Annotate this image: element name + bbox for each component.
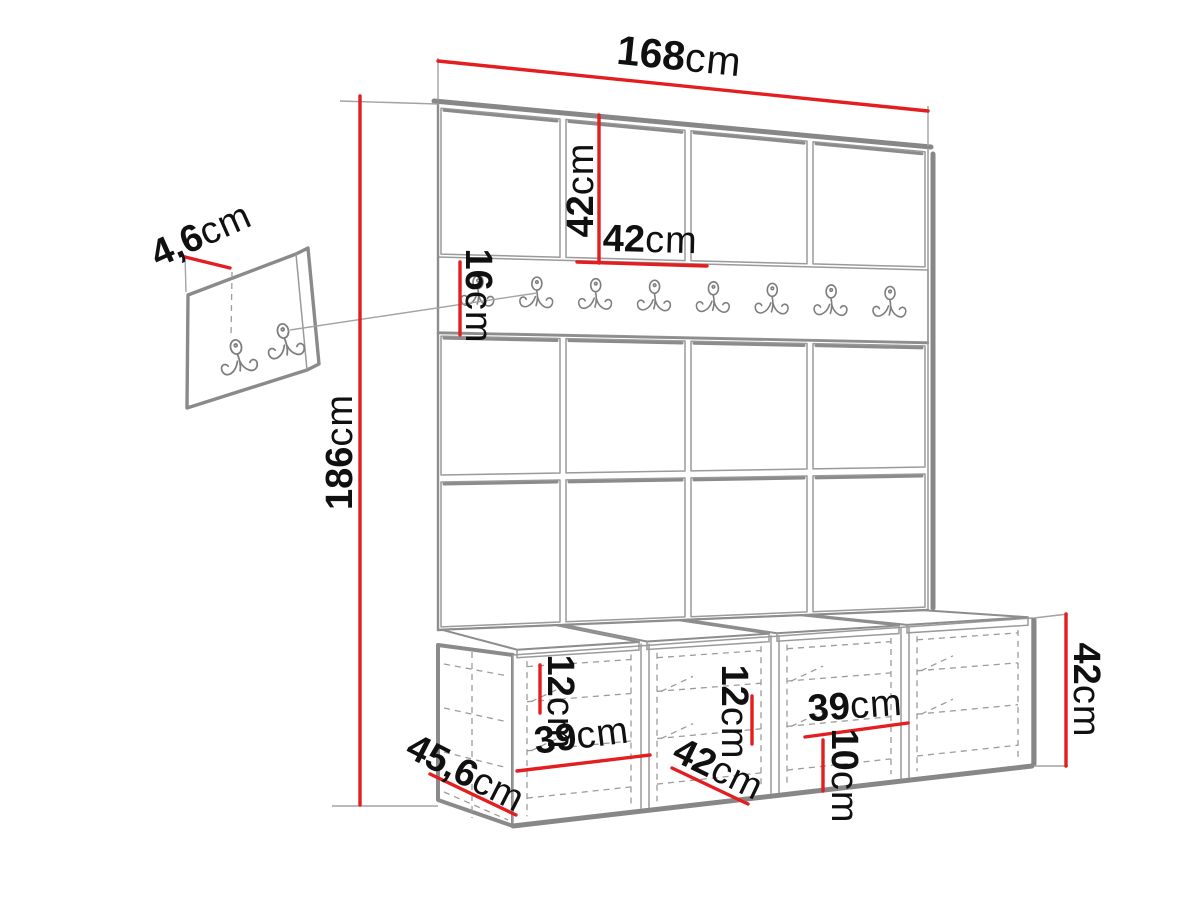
dimension-label-panel-depth: 4,6cm	[144, 194, 257, 275]
wall-panel-top-shadow	[444, 482, 557, 484]
dimension-label-total-width: 168cm	[615, 27, 744, 85]
wall-panel	[441, 480, 560, 627]
hook-rail-band	[438, 257, 928, 342]
dimension-label-comp2-shelf: 12cm	[713, 665, 755, 760]
wall-panel	[691, 476, 807, 617]
wall-unit	[434, 101, 933, 630]
wall-panel	[691, 131, 807, 264]
dimension-label-top-panel-width: 42cm	[602, 218, 698, 262]
dimension-label-comp3-width: 39cm	[806, 682, 904, 731]
wall-panel	[441, 108, 560, 257]
wall-panel-top-shadow	[816, 476, 922, 478]
extension-line	[340, 101, 438, 104]
wall-panel	[566, 478, 685, 622]
wall-panel-top-shadow	[694, 478, 804, 480]
dimension-label-bench-height: 42cm	[1065, 643, 1107, 738]
wall-panel-grid	[441, 108, 925, 627]
furniture-dimension-diagram: 168cm 42cm 42cm 16cm 186cm 4,6cm 45,6cm …	[0, 0, 1200, 899]
wall-panel-top-shadow	[569, 480, 682, 482]
dimension-label-comp3-offset: 10cm	[823, 729, 865, 824]
diagram-canvas: 168cm 42cm 42cm 16cm 186cm 4,6cm 45,6cm …	[0, 0, 1200, 899]
wall-panel	[813, 344, 925, 469]
wall-panel	[441, 336, 560, 475]
dimension-label-rail-height: 16cm	[457, 249, 499, 344]
dimension-label-top-panel-height: 42cm	[560, 143, 602, 238]
wall-panel	[813, 142, 925, 267]
wall-panel	[813, 474, 925, 612]
wall-panel	[691, 341, 807, 471]
extension-line	[1034, 614, 1068, 618]
dimension-label-total-height: 186cm	[319, 394, 361, 510]
wall-panel	[566, 339, 685, 473]
